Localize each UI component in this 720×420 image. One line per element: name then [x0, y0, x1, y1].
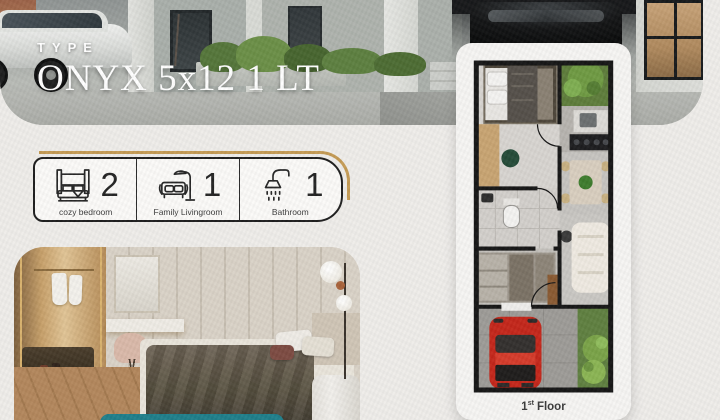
pillow: [301, 336, 334, 357]
livingroom-label: Family Livingroom: [154, 207, 223, 217]
floor-caption: 1stFloor: [456, 400, 631, 413]
lamp-globe: [320, 261, 342, 283]
plants: [374, 52, 426, 76]
vanity-mirror: [114, 255, 160, 313]
cta-button[interactable]: [100, 414, 284, 420]
page-title: ONYX 5x12 1 LT: [37, 57, 320, 100]
hanging-shirt: [51, 273, 67, 306]
bed-icon: [52, 165, 94, 205]
plants: [322, 48, 382, 74]
feature-livingroom: 1 Family Livingroom: [136, 159, 238, 220]
desk-chair: [501, 149, 519, 167]
vanity-counter: [106, 319, 184, 332]
livingroom-count: 1: [203, 168, 221, 201]
closet-rail: [34, 269, 94, 271]
feature-bar: 2 cozy bedroom 1: [33, 157, 343, 222]
floorplan-diagram: [473, 60, 614, 393]
bedroom-label: cozy bedroom: [59, 207, 112, 217]
desk: [475, 124, 499, 186]
bathroom-count: 1: [305, 168, 323, 201]
floor-ordinal: st: [528, 400, 534, 407]
bathroom-label: Bathroom: [272, 207, 309, 217]
floor-number: 1: [521, 401, 527, 413]
bedroom-photo: [14, 247, 360, 420]
accent-pillow: [270, 345, 294, 360]
hanging-shirt: [68, 275, 82, 305]
type-label: TYPE: [37, 40, 320, 55]
feature-bathroom: 1 Bathroom: [239, 159, 341, 220]
bedroom-window: [644, 0, 703, 80]
suv-windows: [2, 13, 102, 28]
floor-word: Floor: [537, 401, 566, 413]
entry-door: [548, 275, 559, 305]
facade-pillar: [384, 0, 418, 96]
floorplan-card: 1stFloor: [456, 43, 631, 420]
nightstand: [312, 375, 360, 420]
sofa-lamp-icon: [155, 165, 197, 205]
feature-bedroom: 2 cozy bedroom: [35, 159, 136, 220]
shower-icon: [257, 165, 299, 205]
floor-lamp-pole: [344, 263, 346, 379]
flyer-canvas: TYPE ONYX 5x12 1 LT 2 cozy bedr: [0, 0, 720, 420]
bedroom-count: 2: [100, 168, 118, 201]
lamp-globe: [336, 295, 352, 311]
headline: TYPE ONYX 5x12 1 LT: [37, 40, 320, 100]
lamp-bead: [336, 281, 345, 290]
red-car: [489, 317, 541, 389]
